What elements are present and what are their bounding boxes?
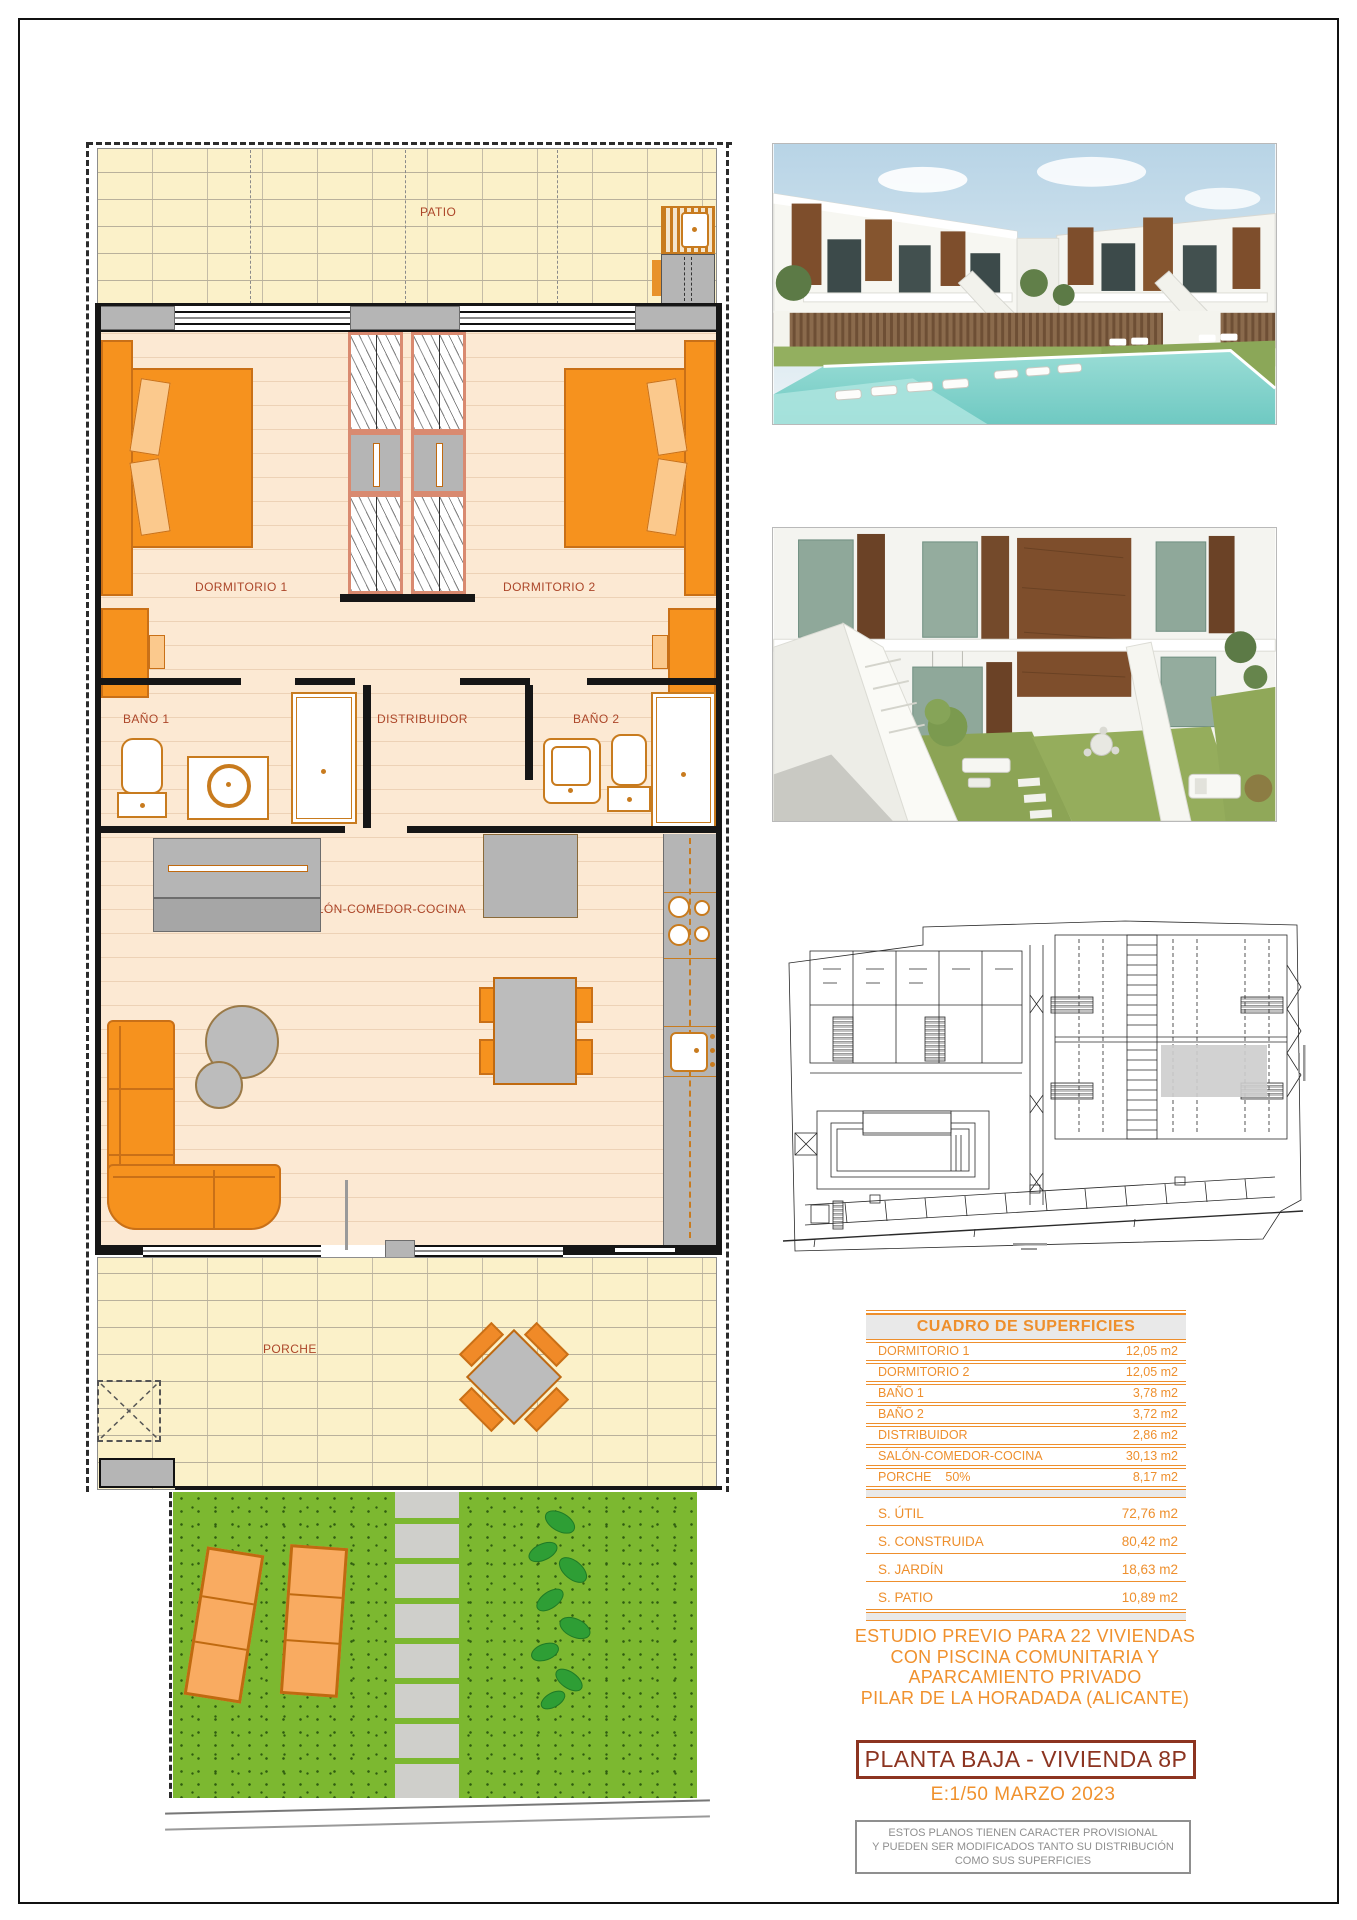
utility-closet (661, 254, 715, 304)
hob-icon (668, 896, 690, 918)
toilet-1-tank (117, 792, 167, 818)
vanity-1 (187, 756, 269, 820)
shower-2 (651, 692, 716, 828)
wardrobe-slider-right (411, 432, 466, 494)
salon-window-right (415, 1245, 563, 1257)
plan-title-box: PLANTA BAJA - VIVIENDA 8P (856, 1740, 1196, 1779)
table-separator (866, 1612, 1186, 1621)
dresser-1-stool (149, 635, 165, 669)
garden-boundary-left (169, 1492, 172, 1798)
courtyard-garden-render (772, 527, 1277, 822)
room-label-dorm1: DORMITORIO 1 (195, 580, 288, 594)
hall-cabinet (483, 834, 578, 918)
hob-icon (668, 924, 690, 946)
wardrobe-left-top (348, 332, 403, 432)
disclaimer-line: ESTOS PLANOS TIENEN CARACTER PROVISIONAL (859, 1826, 1187, 1840)
patio-joint (250, 150, 251, 304)
room-label-bano2: BAÑO 2 (573, 712, 619, 726)
dining-table (493, 977, 577, 1085)
dining-chair (575, 987, 593, 1023)
porch-area (97, 1257, 717, 1490)
tv-sideboard-base (153, 898, 321, 932)
boundary-top (87, 142, 732, 145)
tv-sideboard (153, 838, 321, 898)
toilet-2 (611, 734, 647, 786)
table-row: DORMITORIO 212,05 m2 (866, 1363, 1186, 1382)
coffee-table-small (195, 1061, 243, 1109)
table-row: SALÓN-COMEDOR-COCINA30,13 m2 (866, 1447, 1186, 1466)
shower-1 (291, 692, 357, 824)
dining-chair (575, 1039, 593, 1075)
sun-lounger (280, 1544, 348, 1698)
disclaimer-line: COMO SUS SUPERFICIES (859, 1854, 1187, 1868)
sink-2 (543, 738, 601, 804)
table-total-row: S. ÚTIL72,76 m2 (866, 1500, 1186, 1526)
room-label-distribuidor: DISTRIBUIDOR (377, 712, 468, 726)
surfaces-table-title: CUADRO DE SUPERFICIES (866, 1313, 1186, 1340)
table-row: DORMITORIO 112,05 m2 (866, 1342, 1186, 1361)
porch-step (99, 1458, 175, 1488)
kitchen-sink (670, 1032, 708, 1072)
utility-door (652, 260, 661, 296)
sofa-chaise (107, 1164, 281, 1230)
toilet-1 (121, 738, 163, 794)
porch-pergola-outline (97, 1380, 161, 1442)
wardrobe-right-top (411, 332, 466, 432)
table-row: BAÑO 23,72 m2 (866, 1405, 1186, 1424)
kitchen-counter (663, 834, 716, 1245)
dresser-2-stool (652, 635, 668, 669)
wardrobe-left-bottom (348, 494, 403, 594)
description-line: CON PISCINA COMUNITARIA Y (830, 1647, 1220, 1668)
hob-icon (694, 926, 710, 942)
room-label-patio: PATIO (420, 205, 456, 219)
scale-date: E:1/50 MARZO 2023 (856, 1784, 1190, 1806)
patio-area (97, 148, 717, 308)
laundry-sink (661, 206, 715, 254)
site-plan-drawing (775, 905, 1310, 1265)
surfaces-table: CUADRO DE SUPERFICIES DORMITORIO 112,05 … (866, 1310, 1186, 1621)
bed-1-headboard (101, 340, 133, 596)
bed-2-headboard (684, 340, 716, 596)
room-label-salon: SALÓN-COMEDOR-COCINA (300, 902, 466, 916)
bedroom1-window (175, 311, 350, 325)
room-label-dorm2: DORMITORIO 2 (503, 580, 596, 594)
description-line: APARCAMIENTO PRIVADO (830, 1667, 1220, 1688)
boundary-left (86, 142, 89, 1492)
table-total-row: S. PATIO10,89 m2 (866, 1584, 1186, 1610)
disclaimer-line: Y PUEDEN SER MODIFICADOS TANTO SU DISTRI… (859, 1840, 1187, 1854)
table-row: BAÑO 13,78 m2 (866, 1384, 1186, 1403)
porch-door-leaf (345, 1180, 348, 1250)
table-separator (866, 1489, 1186, 1498)
boundary-right (726, 142, 729, 1492)
hob-icon (694, 900, 710, 916)
wardrobe-slider-left (348, 432, 403, 494)
porche-note: 50% (945, 1470, 970, 1484)
bedroom2-window (460, 311, 635, 325)
plan-sheet: PATIO (0, 0, 1357, 1920)
room-label-porche: PORCHE (263, 1342, 317, 1356)
table-total-row: S. CONSTRUIDA80,42 m2 (866, 1528, 1186, 1554)
table-row: DISTRIBUIDOR2,86 m2 (866, 1426, 1186, 1445)
floor-plan: PATIO (95, 140, 722, 1805)
salon-window-left (143, 1245, 321, 1257)
description-line: PILAR DE LA HORADADA (ALICANTE) (830, 1688, 1220, 1709)
disclaimer-box: ESTOS PLANOS TIENEN CARACTER PROVISIONAL… (855, 1820, 1191, 1874)
project-description: ESTUDIO PREVIO PARA 22 VIVIENDAS CON PIS… (830, 1626, 1220, 1708)
table-row: PORCHE 50%8,17 m2 (866, 1468, 1186, 1487)
table-total-row: S. JARDÍN18,63 m2 (866, 1556, 1186, 1582)
description-line: ESTUDIO PREVIO PARA 22 VIVIENDAS (830, 1626, 1220, 1647)
garden-plant (525, 1500, 595, 1715)
room-label-bano1: BAÑO 1 (123, 712, 169, 726)
garden-path (395, 1492, 459, 1798)
plan-title: PLANTA BAJA - VIVIENDA 8P (865, 1746, 1188, 1772)
facade-band (95, 306, 722, 332)
patio-joint (405, 150, 406, 304)
exterior-pool-render (772, 143, 1277, 425)
wardrobe-right-bottom (411, 494, 466, 594)
toilet-2-tank (607, 786, 651, 812)
patio-joint (557, 150, 558, 304)
